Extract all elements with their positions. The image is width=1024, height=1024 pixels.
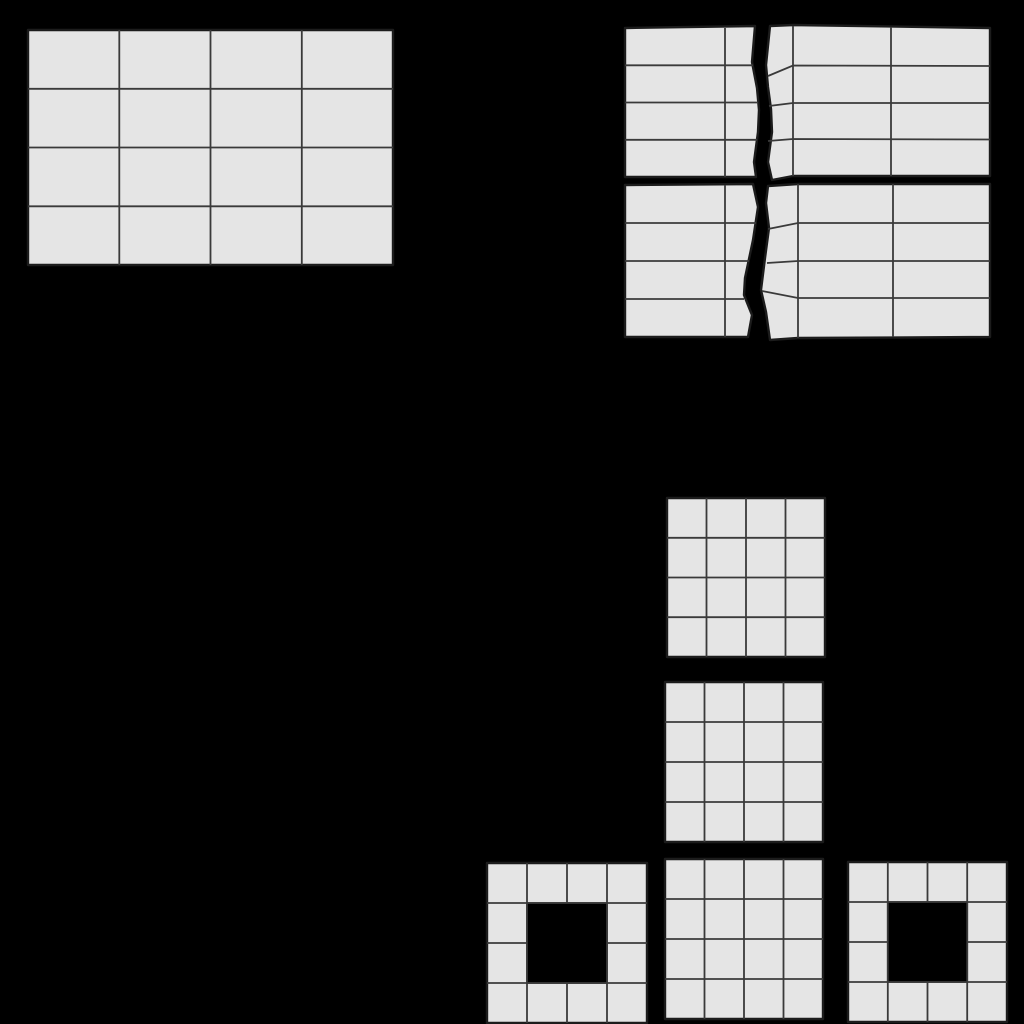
grid-shapes-sheet [0, 0, 1024, 1024]
bar-grid-whole [28, 30, 393, 265]
grid-shapes-canvas [0, 0, 1024, 1024]
frame-grid-right [848, 862, 1007, 1022]
torn-bar-bottom-left-fragment [625, 184, 758, 337]
torn-bar-bottom-right-fragment [761, 184, 990, 340]
square-grid-upper [667, 498, 825, 657]
square-grid-lower [665, 859, 823, 1019]
frame-grid-right-hole [888, 902, 967, 982]
frame-grid-left-hole [527, 903, 607, 983]
torn-bar-top-left-fragment [625, 26, 759, 177]
torn-bar-top-right-fragment [766, 25, 990, 180]
torn-bar-top-left-fragment-outline [625, 26, 759, 177]
square-grid-middle [665, 682, 823, 842]
frame-grid-left [487, 863, 647, 1023]
